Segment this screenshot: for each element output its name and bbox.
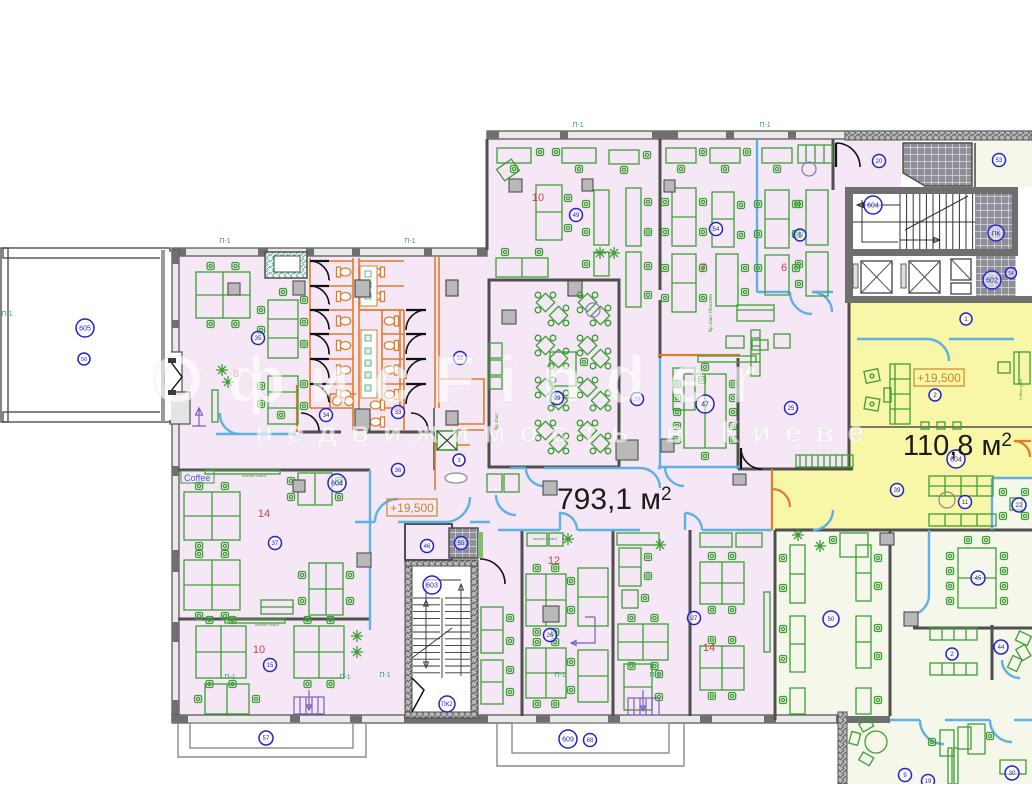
svg-text:30: 30 [1009,771,1016,777]
svg-text:ПК: ПК [992,230,1001,237]
svg-text:54: 54 [1008,271,1014,277]
svg-text:56: 56 [81,357,87,363]
svg-text:П-1: П-1 [572,122,583,129]
svg-text:45: 45 [975,576,982,582]
svg-text:605: 605 [79,326,91,333]
svg-text:793,1 м2: 793,1 м2 [557,483,672,516]
svg-text:П-1: П-1 [554,672,565,679]
svg-text:ОфисFinder: ОфисFinder [152,342,780,416]
svg-text:Coffee: Coffee [184,473,210,483]
svg-text:36: 36 [395,468,402,474]
svg-text:22: 22 [1016,503,1023,509]
svg-text:19: 19 [925,779,932,784]
svg-text:10: 10 [253,644,265,656]
svg-text:54: 54 [713,227,720,233]
svg-text:37: 37 [272,541,279,547]
svg-text:27: 27 [691,616,698,622]
svg-text:+19,500: +19,500 [390,501,434,515]
svg-text:ПК2: ПК2 [441,702,453,708]
svg-text:marker board: marker board [255,622,279,627]
svg-text:П-1: П-1 [1,311,12,318]
svg-text:3: 3 [457,458,460,464]
svg-text:604: 604 [331,481,343,488]
svg-text:6: 6 [781,262,787,274]
svg-text:53: 53 [996,158,1003,164]
svg-text:602: 602 [986,278,998,285]
svg-text:14: 14 [703,642,715,654]
svg-text:68: 68 [587,738,594,744]
svg-text:П-1: П-1 [339,674,350,681]
svg-text:49: 49 [573,213,580,219]
svg-text:П-1: П-1 [219,238,230,245]
svg-text:604: 604 [867,203,879,210]
svg-text:marker board: marker board [533,536,557,541]
svg-text:Coffee point: Coffee point [1018,378,1023,400]
svg-text:57: 57 [263,736,270,742]
svg-text:7: 7 [700,262,706,274]
svg-text:603: 603 [426,583,438,590]
svg-text:609: 609 [562,737,574,744]
svg-text:15: 15 [267,663,274,669]
svg-text:50: 50 [828,617,835,623]
svg-text:20: 20 [876,159,883,165]
svg-text:25: 25 [788,406,795,412]
svg-text:П-1: П-1 [224,674,235,681]
svg-text:marker board: marker board [242,473,266,478]
svg-text:11: 11 [962,500,969,506]
svg-text:46: 46 [424,544,431,550]
svg-text:П-1: П-1 [759,122,770,129]
svg-text:44: 44 [998,645,1005,651]
svg-text:П-1: П-1 [404,238,415,245]
svg-text:П-1: П-1 [649,672,660,679]
svg-text:П-1: П-1 [379,672,390,679]
svg-text:недвижимость в Киеве: недвижимость в Киеве [255,416,878,449]
svg-text:55: 55 [458,541,465,547]
svg-text:110,8 м2: 110,8 м2 [903,430,1012,462]
svg-text:39: 39 [894,488,901,494]
svg-text:+19,500: +19,500 [917,371,961,385]
svg-text:12: 12 [548,555,560,567]
svg-text:10: 10 [532,192,544,204]
svg-text:flip chart 700x1000: flip chart 700x1000 [708,293,713,332]
svg-text:14: 14 [258,508,270,520]
svg-text:26: 26 [547,633,554,639]
